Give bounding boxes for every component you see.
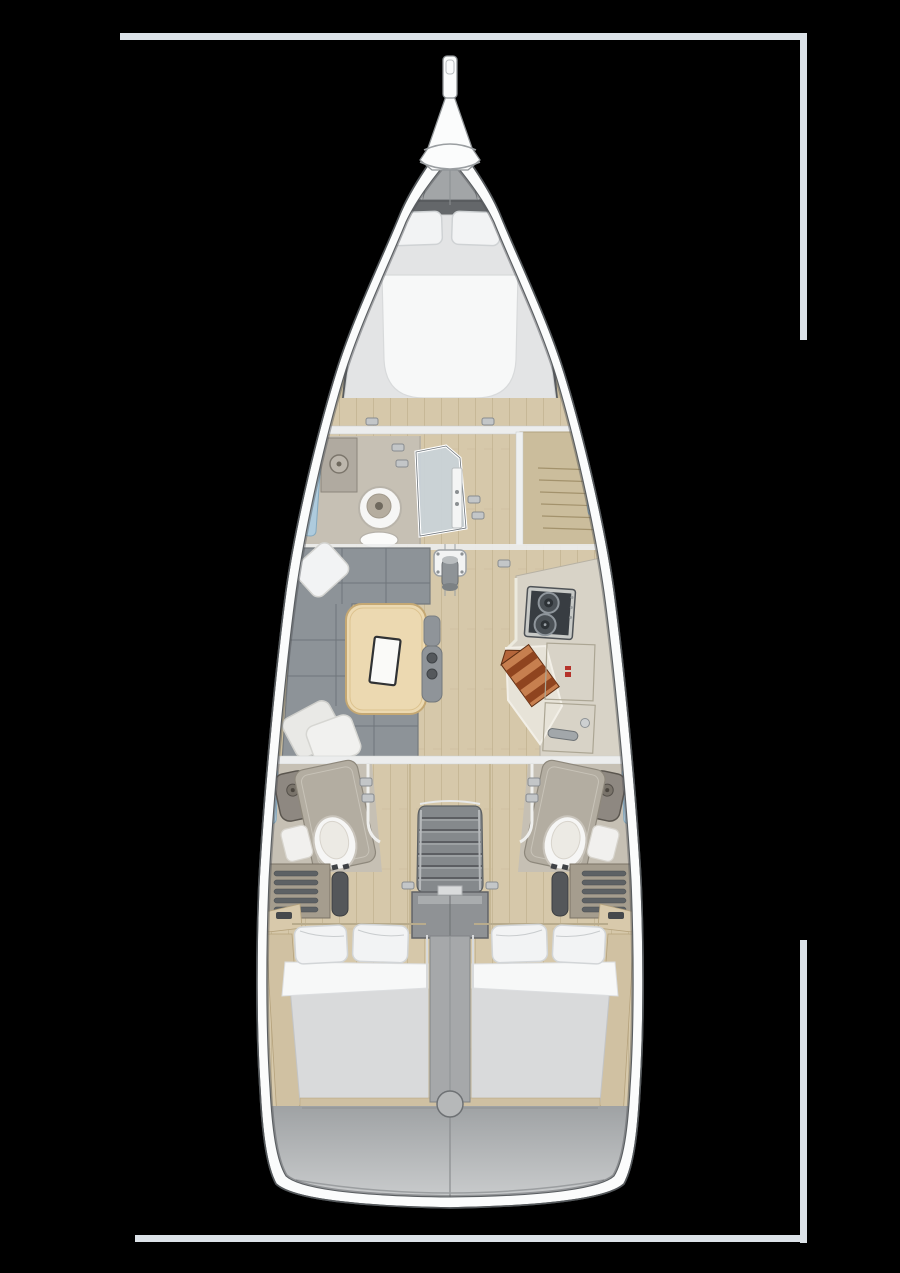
table-insert [369,637,400,686]
door-hinge [360,778,372,786]
locker-tread [332,872,348,916]
v-berth-duvet [382,275,518,398]
yacht-floorplan-diagram [0,0,900,1273]
stove [524,586,575,639]
page-edge-bottom [135,1235,807,1242]
interior [240,140,660,1220]
stair-step-plate [438,886,462,895]
bowsprit-shaft [443,56,457,98]
steering-hatch [437,1091,463,1117]
cabin-door [452,468,462,528]
aft-pillow-inboard [352,924,408,963]
aft-pillow-outboard [294,925,348,965]
screenshot-root [0,0,900,1273]
page-edge-right-upper [800,33,807,340]
brand-logo-mark [565,666,571,670]
page-edge-top [120,33,807,40]
navigator-chair [422,616,442,702]
aft-bulkhead-trim [272,756,628,764]
page-edge-right-lower [800,940,807,1243]
